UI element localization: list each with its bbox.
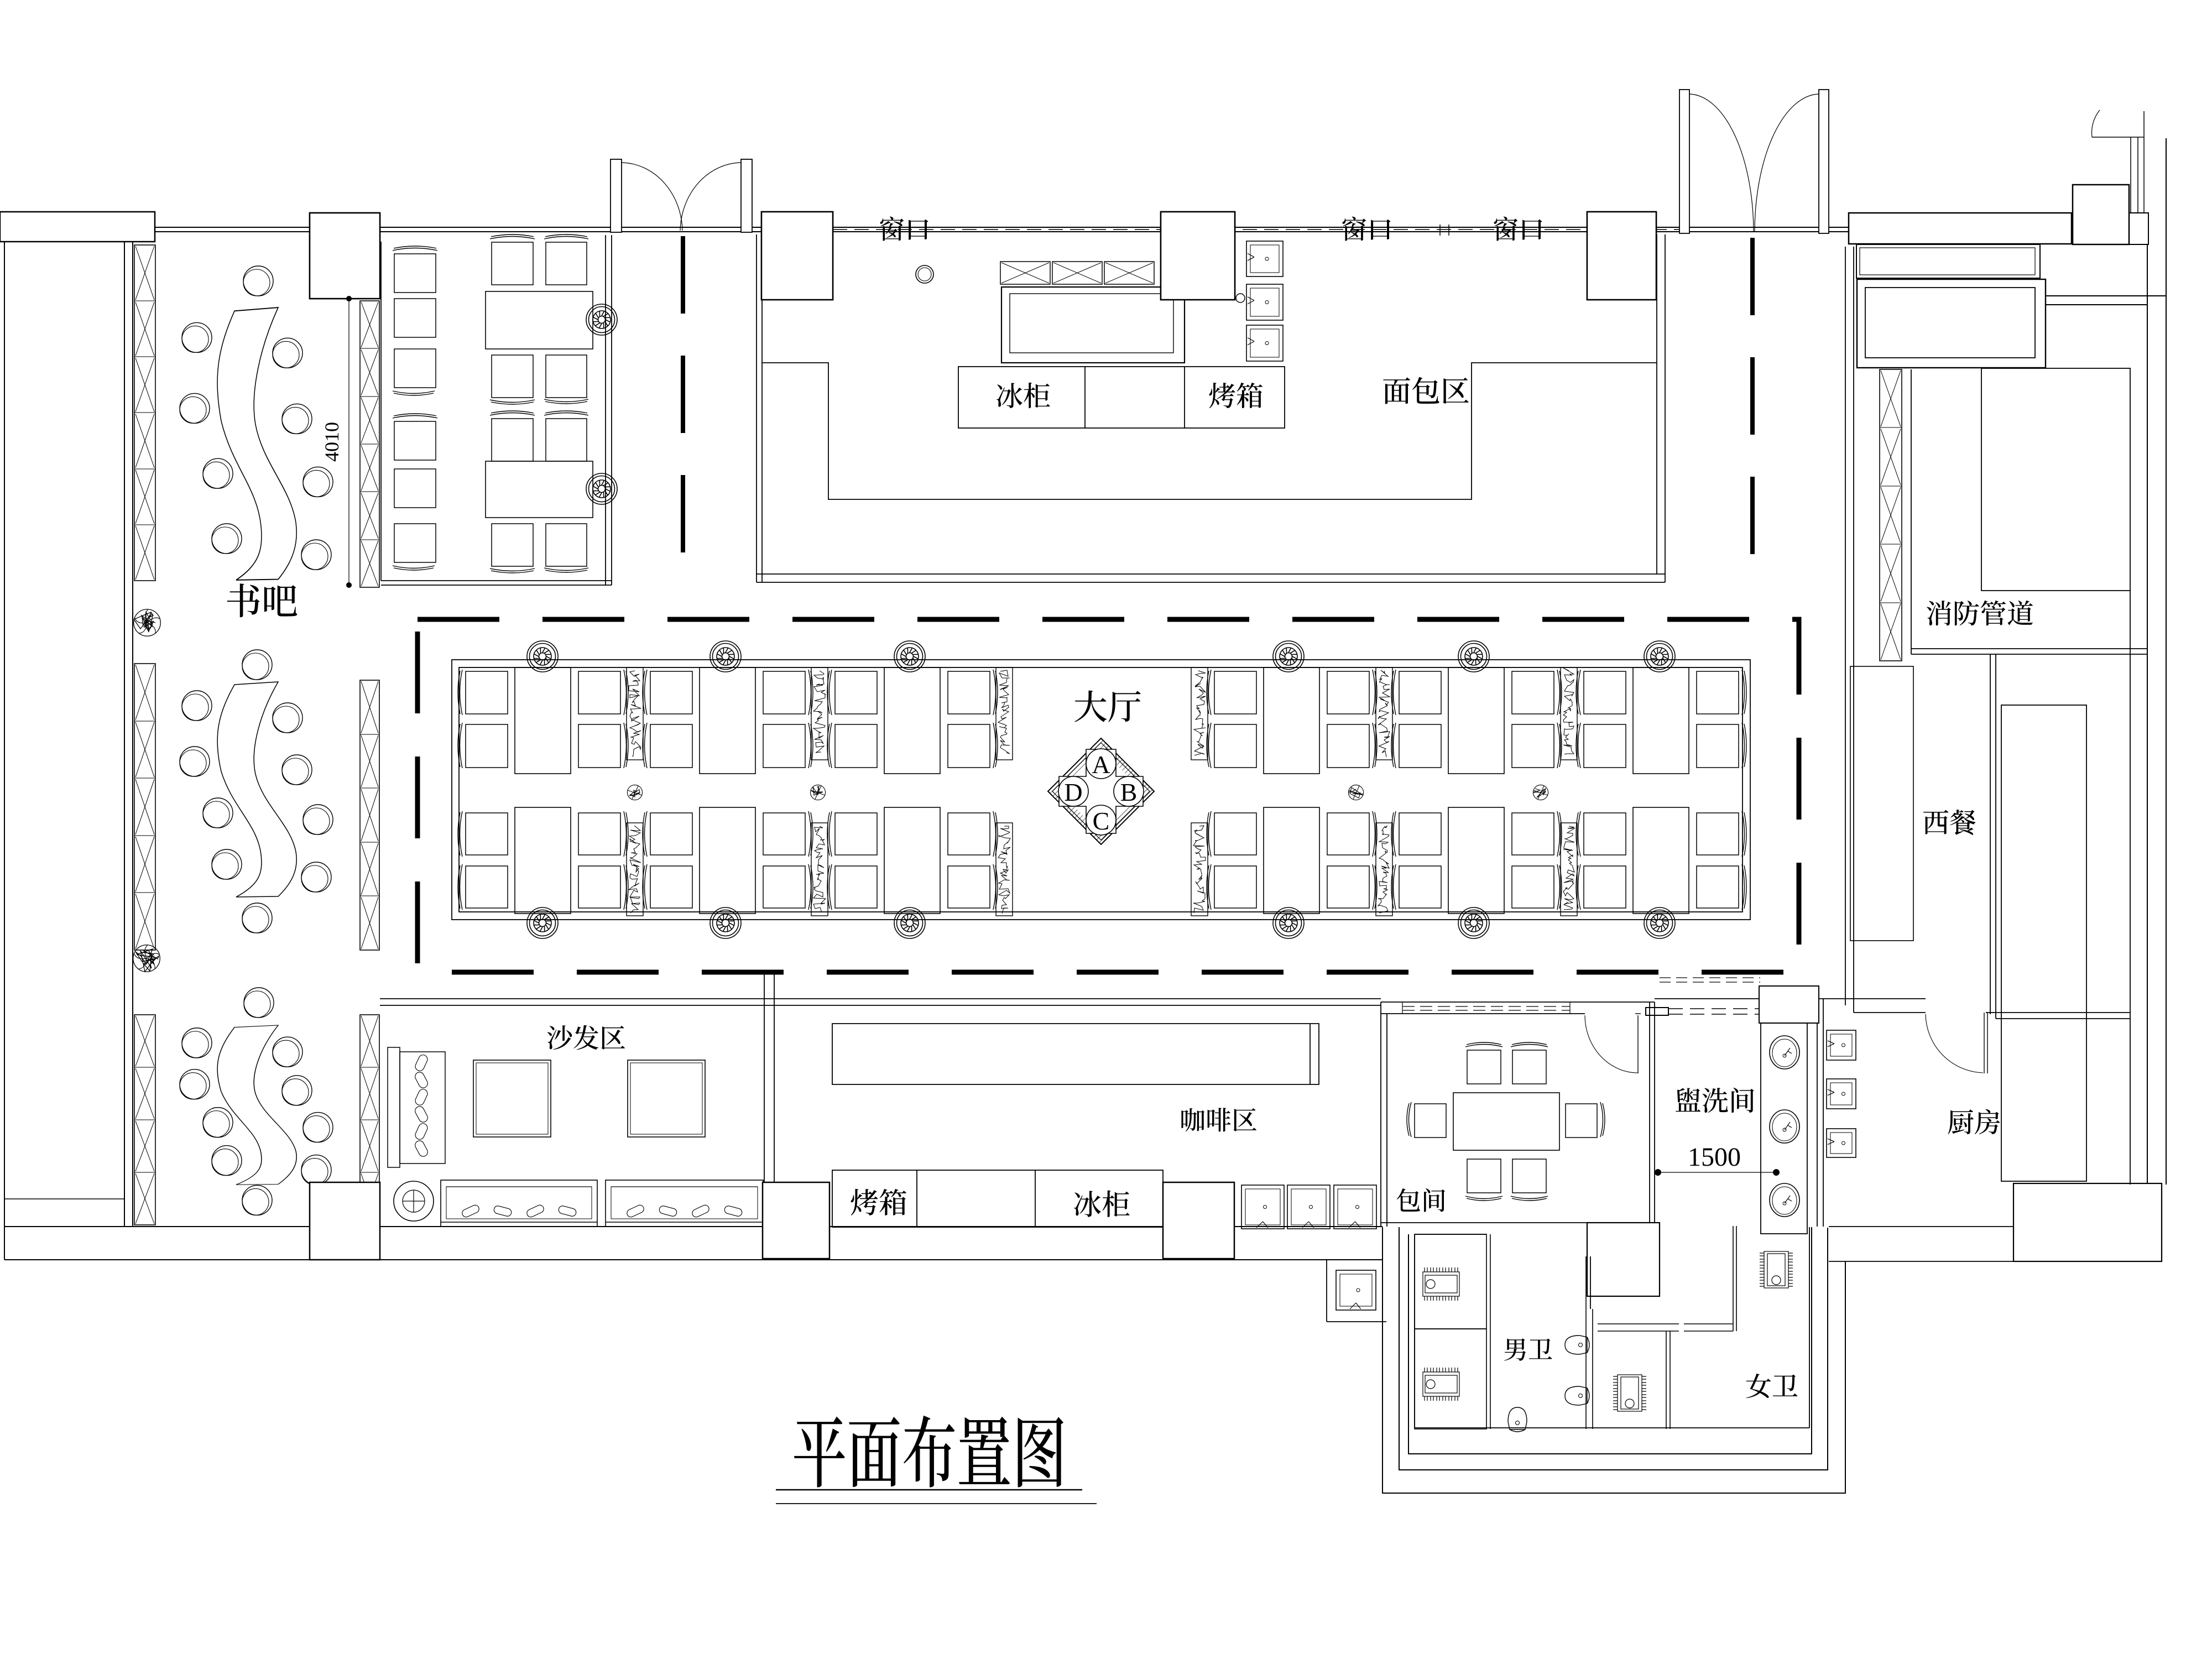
svg-text:D: D [1064, 778, 1082, 806]
svg-text:B: B [1120, 778, 1138, 806]
svg-text:4010: 4010 [321, 422, 343, 462]
svg-text:1500: 1500 [1688, 1142, 1741, 1172]
svg-text:A: A [1092, 750, 1110, 779]
svg-text:C: C [1093, 807, 1110, 835]
